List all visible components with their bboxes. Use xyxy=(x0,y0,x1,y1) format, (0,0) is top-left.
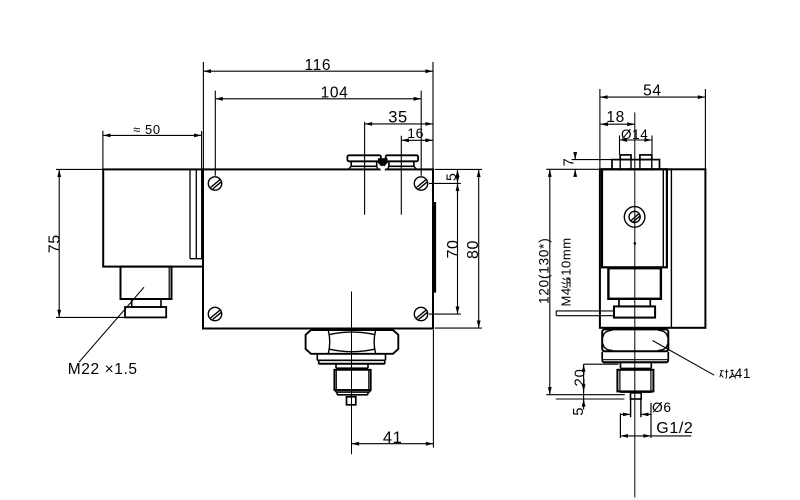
svg-text:104: 104 xyxy=(321,85,349,102)
svg-text:75: 75 xyxy=(47,234,64,253)
svg-text:7: 7 xyxy=(562,158,578,167)
svg-text:5: 5 xyxy=(443,173,459,181)
svg-text:20: 20 xyxy=(571,369,588,387)
svg-text:54: 54 xyxy=(643,82,661,99)
svg-text:M4: M4 xyxy=(558,287,573,306)
svg-text:≈ 50: ≈ 50 xyxy=(133,122,161,137)
svg-text:M22 ×1.5: M22 ×1.5 xyxy=(68,361,138,378)
svg-text:18: 18 xyxy=(606,109,624,126)
svg-text:41: 41 xyxy=(383,429,403,447)
svg-text:G1/2: G1/2 xyxy=(656,420,693,437)
svg-text:10mm: 10mm xyxy=(558,237,573,276)
svg-text:5: 5 xyxy=(571,407,587,416)
svg-text:16: 16 xyxy=(407,125,424,141)
svg-text:Ø6: Ø6 xyxy=(652,400,672,415)
svg-text:70: 70 xyxy=(445,240,462,259)
svg-text:116: 116 xyxy=(305,57,332,74)
svg-text:35: 35 xyxy=(388,108,408,126)
svg-text:Ø14: Ø14 xyxy=(621,127,648,142)
svg-text:41: 41 xyxy=(735,366,751,381)
svg-text:80: 80 xyxy=(465,240,482,259)
svg-text:120(130*): 120(130*) xyxy=(536,237,551,304)
